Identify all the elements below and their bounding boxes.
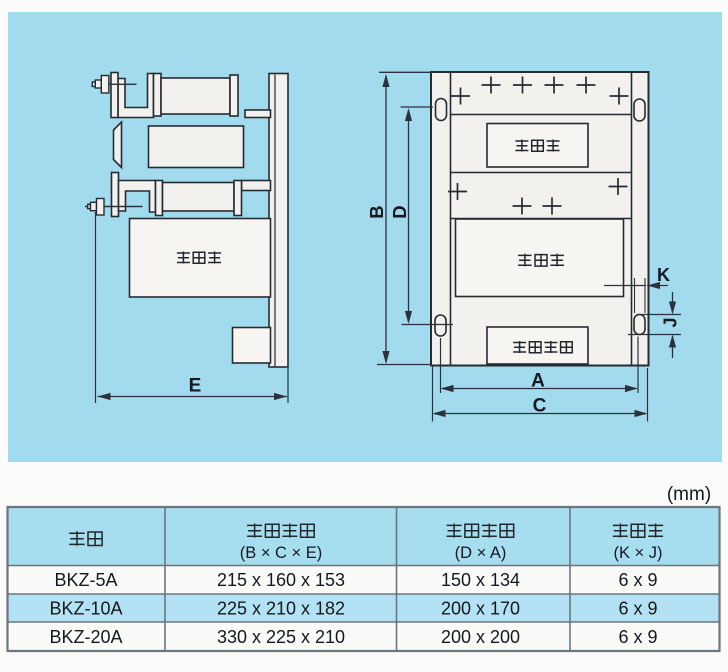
svg-text:330 x 225 x 210: 330 x 225 x 210: [217, 627, 345, 647]
svg-text:(D × A): (D × A): [455, 544, 507, 562]
svg-text:A: A: [531, 371, 545, 392]
svg-text:200 x 200: 200 x 200: [441, 627, 520, 647]
svg-text:BKZ-5A: BKZ-5A: [54, 570, 117, 590]
svg-text:225 x 210 x 182: 225 x 210 x 182: [217, 599, 345, 619]
svg-text:6 x 9: 6 x 9: [618, 627, 657, 647]
svg-text:E: E: [189, 376, 202, 397]
svg-text:(B × C × E): (B × C × E): [240, 544, 323, 562]
svg-text:200 x 170: 200 x 170: [441, 599, 520, 619]
svg-text:150 x 134: 150 x 134: [441, 570, 520, 590]
svg-text:(K × J): (K × J): [613, 544, 662, 562]
svg-text:6 x 9: 6 x 9: [618, 599, 657, 619]
svg-text:D: D: [389, 205, 410, 218]
svg-text:6 x 9: 6 x 9: [618, 570, 657, 590]
svg-text:C: C: [533, 396, 547, 417]
svg-text:J: J: [661, 317, 681, 327]
svg-text:BKZ-10A: BKZ-10A: [49, 599, 122, 619]
svg-text:BKZ-20A: BKZ-20A: [49, 627, 122, 647]
svg-text:(mm): (mm): [667, 484, 711, 505]
svg-text:K: K: [657, 265, 670, 285]
svg-text:215 x 160 x 153: 215 x 160 x 153: [217, 570, 345, 590]
svg-text:B: B: [366, 205, 387, 218]
